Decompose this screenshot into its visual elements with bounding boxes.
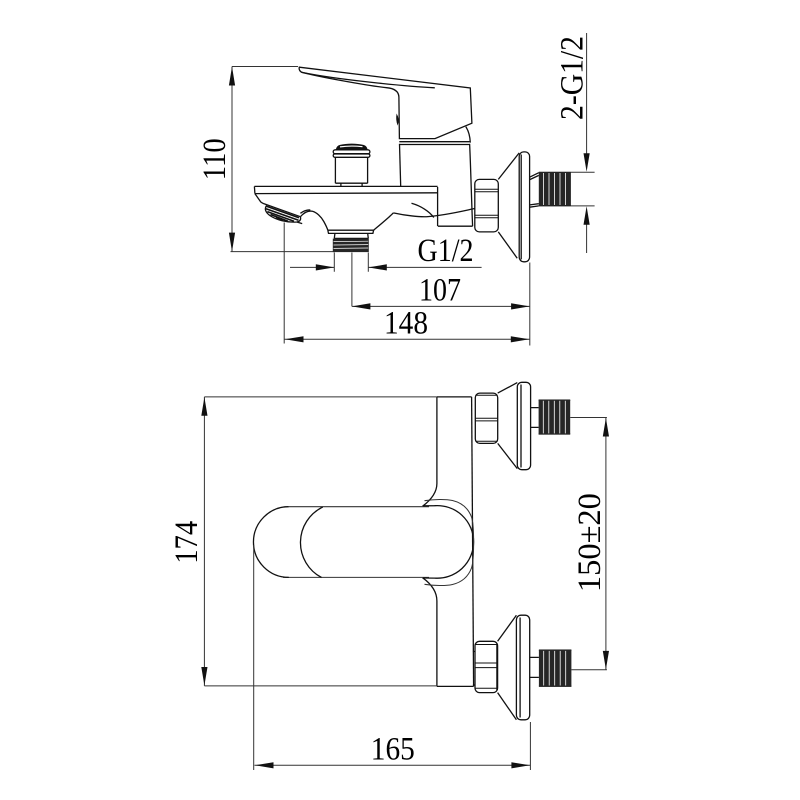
svg-text:2-G1/2: 2-G1/2 [555,36,591,120]
svg-text:150±20: 150±20 [572,493,608,592]
svg-text:174: 174 [169,521,205,564]
svg-text:G1/2: G1/2 [418,233,474,269]
svg-text:110: 110 [197,138,233,180]
svg-text:107: 107 [419,272,461,308]
svg-text:165: 165 [371,731,415,767]
svg-text:148: 148 [384,306,428,342]
